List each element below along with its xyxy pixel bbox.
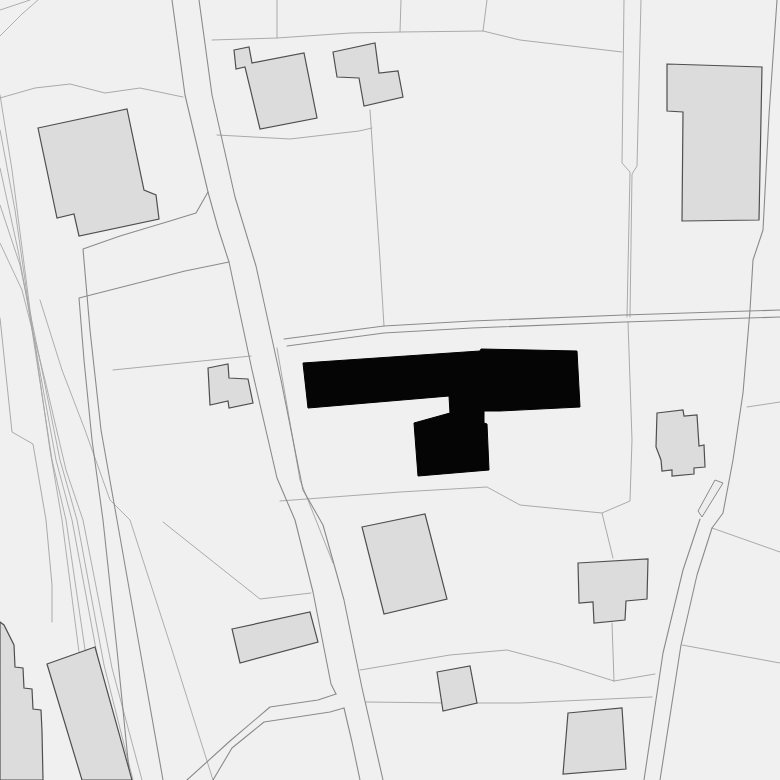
site-plan-canvas (0, 0, 780, 780)
building-right-small (656, 410, 705, 476)
site-plan-map (0, 0, 780, 780)
building-bottom-square-small (437, 666, 477, 711)
building-bottom-right-square (563, 708, 626, 774)
